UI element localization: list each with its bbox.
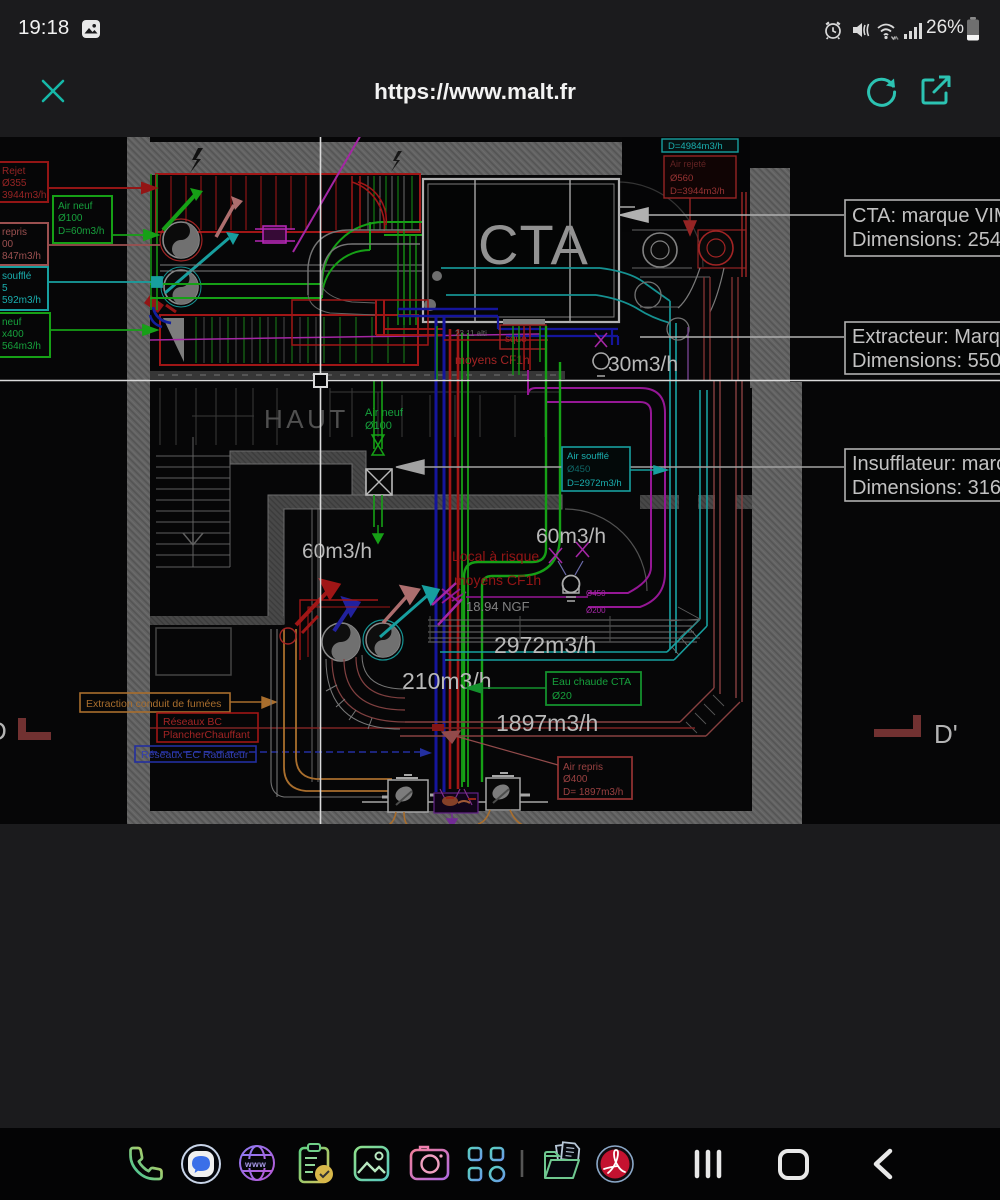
svg-text:Air repris: Air repris (563, 762, 603, 773)
svg-text:repris: repris (2, 227, 27, 238)
svg-text:soufflé: soufflé (2, 271, 32, 282)
svg-text:x400: x400 (2, 329, 24, 340)
svg-text:Rejet: Rejet (2, 166, 26, 177)
svg-text:Ø450: Ø450 (567, 464, 590, 475)
svg-text:www: www (244, 1159, 266, 1169)
svg-text:Local à risque: Local à risque (452, 548, 539, 564)
svg-text:592m3/h: 592m3/h (2, 295, 41, 306)
svg-text:Air neuf: Air neuf (58, 201, 93, 212)
svg-text:D=2972m3/h: D=2972m3/h (567, 478, 622, 489)
svg-text:Extracteur: Marqu: Extracteur: Marqu (852, 326, 1000, 348)
svg-text:Ø100: Ø100 (365, 420, 392, 432)
svg-text:CTA: CTA (478, 213, 589, 276)
svg-text:Ø100: Ø100 (58, 213, 83, 224)
svg-text:Air rejeté: Air rejeté (670, 159, 706, 169)
svg-text:30m3/h: 30m3/h (608, 353, 678, 376)
svg-text:Dimensions: 2545: Dimensions: 2545 (852, 229, 1000, 251)
svg-text:00: 00 (2, 239, 14, 250)
svg-text:Extraction conduit de fumées: Extraction conduit de fumées (86, 698, 221, 710)
svg-text:Insufflateur: marc: Insufflateur: marc (852, 453, 1000, 475)
svg-text:Ø450: Ø450 (586, 589, 606, 598)
svg-text:Ø20: Ø20 (552, 690, 572, 702)
svg-text:60m3/h: 60m3/h (536, 525, 606, 548)
svg-text:18.94 NGF: 18.94 NGF (466, 599, 530, 614)
svg-text:2972m3/h: 2972m3/h (494, 632, 596, 658)
svg-text:Air neuf: Air neuf (365, 407, 404, 419)
svg-text:neuf: neuf (2, 317, 22, 328)
svg-text:D= 1897m3/h: D= 1897m3/h (563, 787, 623, 798)
svg-text:Dimensions: 316x: Dimensions: 316x (852, 477, 1000, 499)
svg-text:Ø200: Ø200 (586, 606, 606, 615)
svg-text:D: D (0, 716, 7, 746)
svg-text:60m3/h: 60m3/h (302, 540, 372, 563)
svg-text:Réseaux BC: Réseaux BC (163, 716, 222, 728)
svg-text:847m3/h: 847m3/h (2, 251, 41, 262)
svg-text:564m3/h: 564m3/h (2, 341, 41, 352)
svg-text:3944m3/h: 3944m3/h (2, 190, 46, 201)
svg-text:Ø355: Ø355 (2, 178, 27, 189)
svg-text:Eau chaude CTA: Eau chaude CTA (552, 676, 631, 688)
svg-text:1897m3/h: 1897m3/h (496, 710, 598, 736)
svg-text:23.11 alti: 23.11 alti (455, 329, 487, 338)
svg-text:Dimensions: 550x: Dimensions: 550x (852, 350, 1000, 372)
svg-text:Ø560: Ø560 (670, 173, 693, 184)
svg-text:D': D' (934, 719, 958, 749)
svg-text:PlancherChauffant: PlancherChauffant (163, 729, 250, 741)
svg-text:Réseaux EC Radiateur: Réseaux EC Radiateur (141, 749, 249, 761)
svg-text:D=60m3/h: D=60m3/h (58, 226, 104, 237)
svg-text:HAUT: HAUT (264, 404, 349, 434)
svg-text:5: 5 (2, 283, 8, 294)
svg-text:CTA: marque VIM: CTA: marque VIM (852, 205, 1000, 227)
svg-text:D=4984m3/h: D=4984m3/h (668, 141, 723, 152)
svg-text:Air soufflé: Air soufflé (567, 451, 609, 462)
svg-text:Ø400: Ø400 (563, 774, 588, 785)
svg-text:moyens CF1h: moyens CF1h (454, 572, 541, 588)
svg-text:D=3944m3/h: D=3944m3/h (670, 186, 725, 197)
